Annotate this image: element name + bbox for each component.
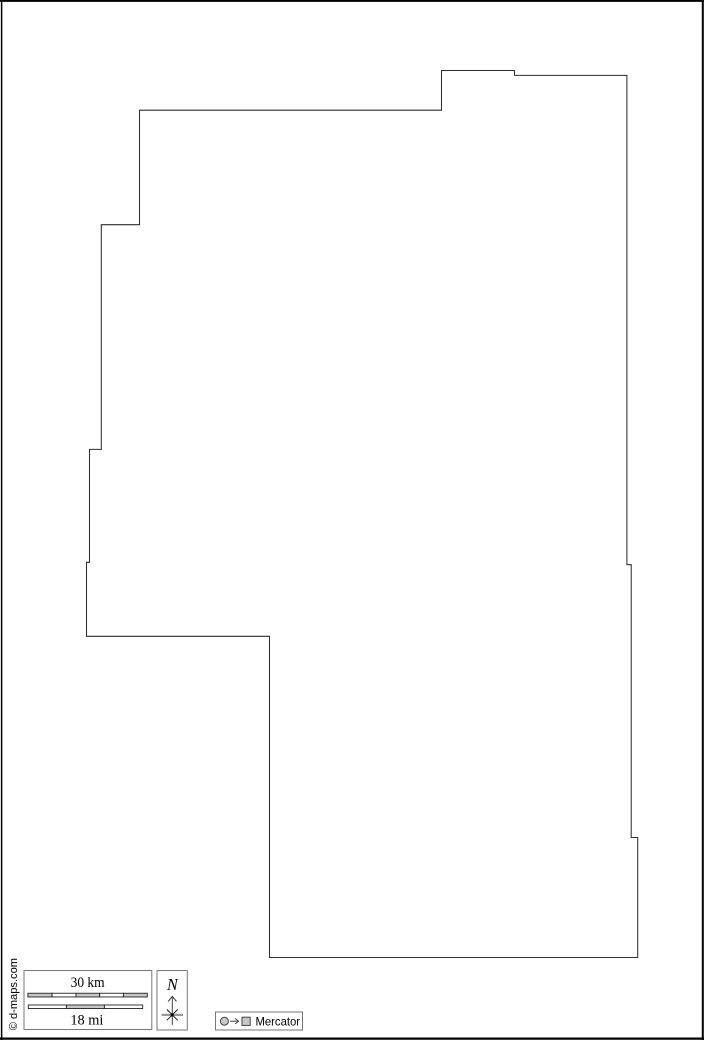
svg-text:© d-maps.com: © d-maps.com bbox=[8, 958, 20, 1030]
svg-text:18 mi: 18 mi bbox=[70, 1012, 103, 1029]
svg-text:30 km: 30 km bbox=[71, 975, 105, 991]
svg-text:Mercator: Mercator bbox=[256, 1015, 301, 1029]
svg-text:N: N bbox=[166, 975, 179, 994]
